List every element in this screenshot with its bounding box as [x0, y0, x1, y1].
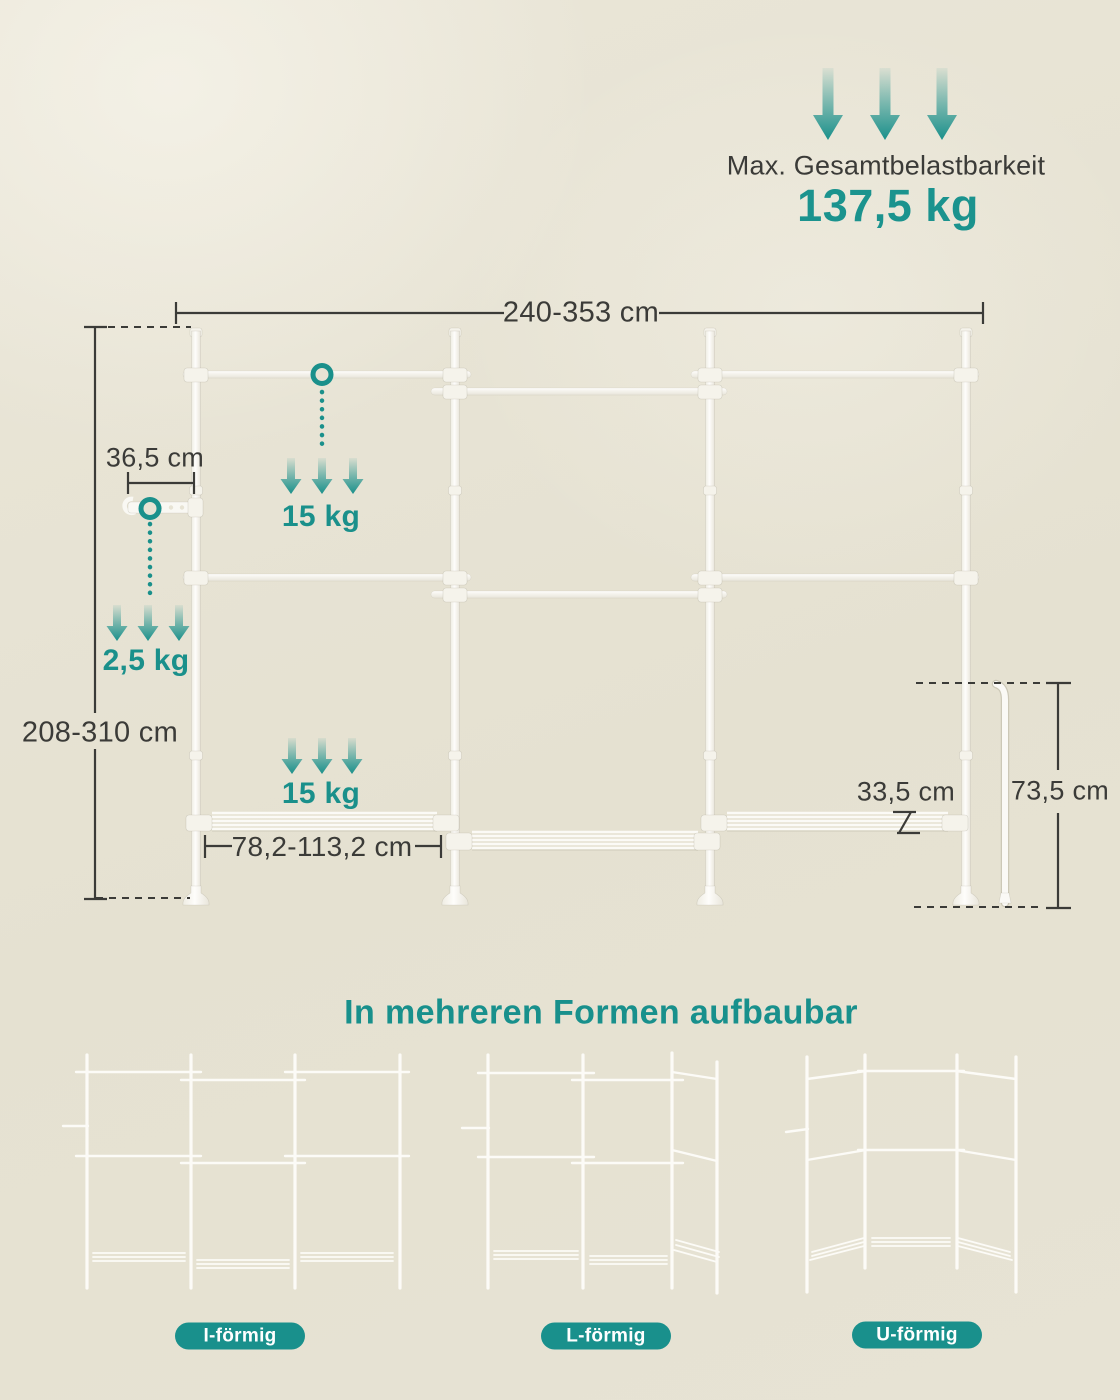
wire-shelf [701, 813, 968, 831]
rail-load-arrows-icon [281, 458, 364, 494]
hook-load-arrows-icon [107, 605, 190, 641]
shelf-load-arrows-icon [282, 738, 363, 774]
hanging-rail [431, 591, 727, 598]
variant-diagram-i [63, 1055, 409, 1288]
hanging-rail [431, 388, 727, 395]
hook-load-label: 2,5 kg [103, 644, 190, 678]
load-markers [107, 366, 364, 775]
max-load-value: 137,5 kg [797, 180, 979, 232]
side-support-pole [996, 684, 1011, 903]
total-height-dimension-label: 208-310 cm [22, 717, 178, 750]
variant-diagram-l [462, 1053, 719, 1293]
variants-section-title: In mehreren Formen aufbaubar [344, 994, 858, 1033]
variant-diagram-u [786, 1055, 1016, 1292]
side-pole-height-dimension-label: 73,5 cm [1011, 776, 1109, 807]
product-infographic: Max. Gesamtbelastbarkeit 137,5 kg 240-35… [0, 0, 1120, 1400]
wire-shelf [186, 813, 459, 831]
hanging-rail [691, 574, 979, 581]
wire-shelf [446, 832, 720, 850]
hook-arm [125, 498, 203, 517]
shelf-load-label: 15 kg [282, 777, 360, 811]
total-width-dimension-label: 240-353 cm [503, 297, 659, 330]
hook-arm-dimension-label: 36,5 cm [106, 443, 204, 474]
rail-load-label: 15 kg [282, 500, 360, 534]
variant-badge-l: L-förmig [541, 1323, 671, 1350]
shelf-width-dimension-label: 78,2-113,2 cm [232, 831, 413, 863]
hanging-rail [183, 574, 471, 581]
rack-structure [125, 328, 1011, 905]
shelf-depth-dimension-label: 33,5 cm [857, 777, 955, 808]
variant-badge-i: I-förmig [175, 1323, 305, 1350]
hook-attach-ring [141, 500, 159, 518]
rail-attach-ring [313, 366, 331, 384]
variant-badge-u: U-förmig [852, 1322, 982, 1349]
max-load-label: Max. Gesamtbelastbarkeit [727, 151, 1045, 182]
max-load-arrows-icon [813, 68, 957, 140]
rail-connectors [184, 368, 978, 602]
hanging-rail [691, 371, 979, 378]
